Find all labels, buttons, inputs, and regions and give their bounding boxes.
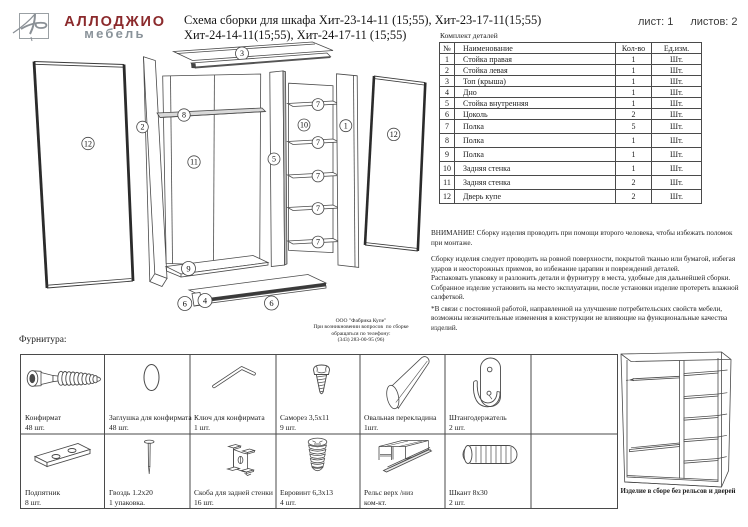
- svg-text:11: 11: [190, 158, 198, 167]
- svg-text:7: 7: [316, 138, 320, 147]
- svg-text:Ключ для конфирмата: Ключ для конфирмата: [194, 413, 265, 422]
- svg-text:Рельс верх /низ: Рельс верх /низ: [364, 488, 413, 497]
- svg-text:Саморез 3,5х11: Саморез 3,5х11: [280, 413, 329, 422]
- svg-text:Подпятник: Подпятник: [25, 488, 61, 497]
- svg-text:7: 7: [316, 172, 320, 181]
- svg-text:ком-кт.: ком-кт.: [364, 498, 386, 507]
- svg-text:Овальная перекладина: Овальная перекладина: [364, 413, 437, 422]
- svg-text:5: 5: [272, 155, 276, 164]
- svg-text:7: 7: [316, 204, 320, 213]
- svg-text:Штангодержатель: Штангодержатель: [449, 413, 507, 422]
- svg-text:12: 12: [84, 139, 92, 148]
- svg-text:8 шт.: 8 шт.: [25, 498, 41, 507]
- svg-text:4 шт.: 4 шт.: [280, 498, 296, 507]
- svg-text:2: 2: [141, 123, 145, 132]
- svg-text:16 шт.: 16 шт.: [194, 498, 214, 507]
- svg-text:6: 6: [183, 298, 187, 308]
- svg-text:1 шт.: 1 шт.: [194, 423, 210, 432]
- svg-text:7: 7: [316, 238, 320, 247]
- svg-text:2 шт.: 2 шт.: [449, 498, 465, 507]
- svg-text:Евровинт 6,3х13: Евровинт 6,3х13: [280, 488, 333, 497]
- svg-text:8: 8: [182, 111, 186, 120]
- svg-text:6: 6: [269, 298, 273, 308]
- svg-text:Гвоздь 1.2х20: Гвоздь 1.2х20: [109, 488, 153, 497]
- svg-text:1шт.: 1шт.: [364, 423, 378, 432]
- svg-text:1: 1: [344, 121, 348, 130]
- svg-text:9 шт.: 9 шт.: [280, 423, 296, 432]
- svg-text:Заглушка для конфирмата: Заглушка для конфирмата: [109, 413, 192, 422]
- svg-text:3: 3: [240, 49, 244, 58]
- svg-text:7: 7: [316, 100, 320, 109]
- svg-text:Скоба для задней стенки: Скоба для задней стенки: [194, 488, 273, 497]
- svg-text:Шкант 8х30: Шкант 8х30: [449, 488, 488, 497]
- svg-text:48 шт.: 48 шт.: [109, 423, 129, 432]
- svg-text:10: 10: [300, 121, 308, 130]
- svg-text:12: 12: [390, 130, 398, 139]
- svg-text:Конфирмат: Конфирмат: [25, 413, 62, 422]
- svg-text:2 шт.: 2 шт.: [449, 423, 465, 432]
- svg-text:48 шт.: 48 шт.: [25, 423, 45, 432]
- svg-text:1 упаковка.: 1 упаковка.: [109, 498, 145, 507]
- svg-text:9: 9: [186, 263, 190, 273]
